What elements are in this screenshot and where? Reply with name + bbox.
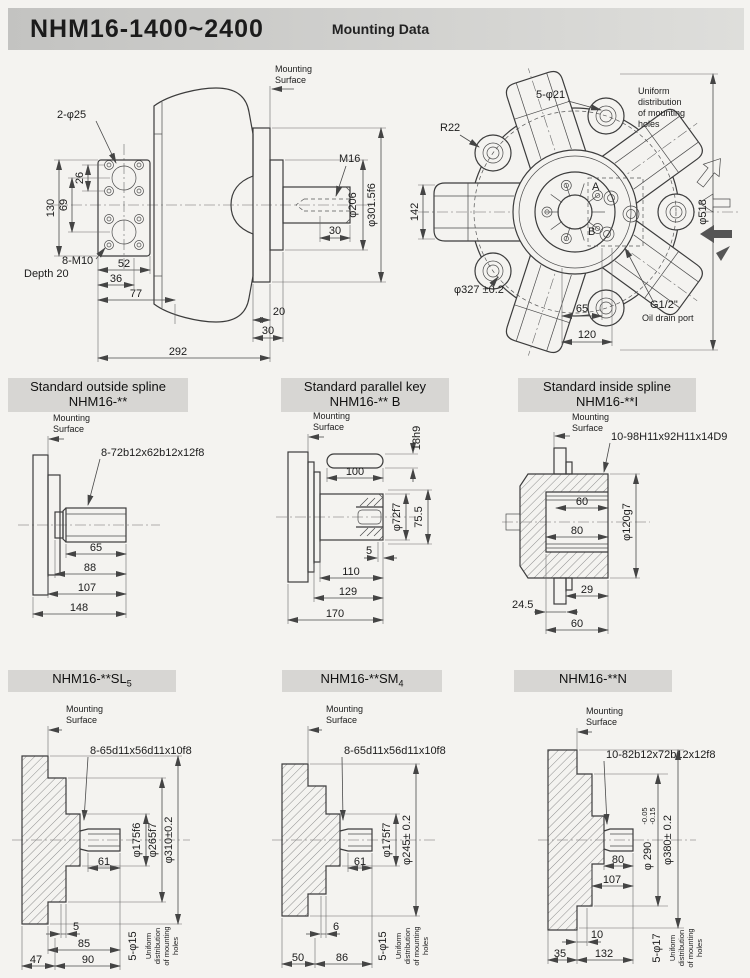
mounting-surface-label: Surface (586, 717, 617, 727)
dim-170: 170 (326, 608, 344, 620)
page-header: NHM16-1400~2400 Mounting Data (8, 8, 744, 50)
drain-thread-label: G1/2" (650, 299, 678, 311)
dim-ports: 2-φ25 (57, 109, 86, 121)
catalog-page: NHM16-1400~2400 Mounting Data (0, 0, 750, 978)
dim-dia120: φ120g7 (621, 503, 633, 541)
dim-dia301: φ301.5f6 (366, 183, 378, 227)
dim-65: 65 (576, 303, 588, 315)
n-flange-drawing: Mounting Surface 10-82b12x72b12x12f8 80 … (500, 698, 748, 978)
port-a-label: A (592, 181, 600, 193)
dim-47: 47 (30, 954, 42, 966)
sl5-flange-drawing: Mounting Surface 8-65d11x56d11x10f8 61 φ… (8, 698, 248, 978)
dim-148: 148 (70, 602, 88, 614)
dim-r22: R22 (440, 122, 460, 134)
dim-5: 5 (366, 545, 372, 557)
dim-dia175: φ175f6 (131, 823, 143, 858)
dim-key-height: 18h9 (411, 426, 423, 450)
mounting-surface-label: Mounting (572, 412, 609, 422)
dim-holes: 5-φ15 (127, 931, 139, 960)
page-subtitle: Mounting Data (332, 21, 429, 37)
panel-title-parallel-key: Standard parallel keyNHM16-** B (281, 378, 449, 412)
dim-52: 52 (118, 258, 130, 270)
svg-text:of mounting: of mounting (412, 926, 421, 965)
panel-title-n: NHM16-**N (514, 670, 672, 692)
svg-text:holes: holes (638, 119, 660, 129)
dim-dia310: φ310±0.2 (163, 817, 175, 864)
dim-65: 65 (90, 542, 102, 554)
spline-spec: 10-98H11x92H11x14D9 (611, 431, 727, 443)
parallel-key-drawing: 100 18h9 Mounting Surface φ72f7 75.5 (268, 410, 493, 635)
mounting-surface-label: Surface (66, 715, 97, 725)
dim-dia206: φ206 (347, 192, 359, 218)
spline-spec: 8-65d11x56d11x10f8 (90, 745, 192, 757)
spline-spec: 10-82b12x72b12x12f8 (606, 749, 715, 761)
mounting-surface-label: Mounting (53, 413, 90, 423)
dim-107: 107 (603, 874, 621, 886)
dim-20: 20 (273, 306, 285, 318)
front-view-drawing: A B 142 φ518 5-φ21 Uniform distribution … (410, 58, 750, 373)
dim-thread: M16 (339, 153, 360, 165)
dim-130: 130 (45, 199, 57, 217)
dim-29: 29 (581, 584, 593, 596)
mounting-surface-label: Mounting (275, 64, 312, 74)
svg-text:Uniform: Uniform (394, 933, 403, 959)
dim-292: 292 (169, 346, 187, 358)
dim-36: 36 (110, 273, 122, 285)
svg-text:holes: holes (695, 939, 704, 957)
dim-60: 60 (576, 496, 588, 508)
dim-dia245: φ245± 0.2 (401, 815, 413, 865)
dim-holes: 5-φ17 (651, 933, 663, 962)
outside-spline-drawing: Mounting Surface 8-72b12x62b12x12f8 65 8… (8, 410, 248, 635)
panel-title-sl5: NHM16-**SL5 (8, 670, 176, 692)
mounting-surface-label: Surface (313, 422, 344, 432)
dim-30s: 30 (329, 225, 341, 237)
mounting-surface-label: Mounting (326, 704, 363, 714)
dim-88: 88 (84, 562, 96, 574)
drain-port-label: Oil drain port (642, 313, 694, 323)
sm4-flange-drawing: Mounting Surface 8-65d11x56d11x10f8 61 φ… (268, 698, 493, 978)
svg-text:holes: holes (171, 937, 180, 955)
svg-text:Uniform: Uniform (144, 933, 153, 959)
dim-50: 50 (292, 952, 304, 964)
spline-spec: 8-65d11x56d11x10f8 (344, 745, 446, 757)
mounting-surface-label: Mounting (586, 706, 623, 716)
uniform-note: Uniform distribution of mounting holes (668, 928, 704, 967)
dim-dia265: φ265f7 (147, 823, 159, 858)
mounting-surface-label: Surface (572, 423, 603, 433)
dim-755: 75.5 (413, 506, 425, 527)
dim-60b: 60 (571, 618, 583, 630)
dim-129: 129 (339, 586, 357, 598)
inside-spline-drawing: Mounting Surface 10-98H11x92H11x14D9 60 … (498, 410, 746, 635)
dim-132: 132 (595, 948, 613, 960)
dim-245: 24.5 (512, 599, 533, 611)
dim-77: 77 (130, 288, 142, 300)
dim-69: 69 (58, 199, 70, 211)
svg-text:Uniform: Uniform (668, 935, 677, 961)
dim-dia175: φ175f7 (381, 823, 393, 858)
svg-text:of mounting: of mounting (638, 108, 685, 118)
dim-120: 120 (578, 329, 596, 341)
dim-dia327: φ327 ±0.2 (454, 284, 504, 296)
mounting-surface-label: Surface (53, 424, 84, 434)
svg-text:distribution: distribution (638, 97, 682, 107)
panel-title-sm4: NHM16-**SM4 (282, 670, 442, 692)
dim-30: 30 (262, 325, 274, 337)
svg-text:distribution: distribution (403, 928, 412, 964)
dim-bolts-depth: Depth 20 (24, 268, 69, 280)
dim-dia290: φ 290 (642, 842, 654, 871)
dim-holes: 5-φ21 (536, 89, 565, 101)
svg-text:of mounting: of mounting (162, 926, 171, 965)
dim-5: 5 (73, 921, 79, 933)
svg-text:holes: holes (421, 937, 430, 955)
dim-142: 142 (409, 203, 421, 221)
mounting-surface-label: Mounting (66, 704, 103, 714)
dim-90: 90 (82, 954, 94, 966)
dim-key-length: 100 (346, 466, 364, 478)
svg-text:distribution: distribution (677, 930, 686, 966)
dim-holes: 5-φ15 (377, 931, 389, 960)
dim-6: 6 (333, 921, 339, 933)
page-title: NHM16-1400~2400 (30, 15, 264, 44)
side-view-drawing: Mounting Surface 2-φ25 130 26 69 8-M10 D… (2, 58, 412, 373)
dim-bolts: 8-M10 (62, 255, 93, 267)
svg-text:distribution: distribution (153, 928, 162, 964)
dim-80: 80 (612, 854, 624, 866)
dim-10: 10 (591, 929, 603, 941)
svg-text:Uniform: Uniform (638, 86, 670, 96)
dim-110: 110 (342, 566, 360, 578)
mounting-surface-label: Surface (326, 715, 357, 725)
dim-dia72: φ72f7 (391, 503, 403, 532)
dim-35: 35 (554, 948, 566, 960)
dim-85: 85 (78, 938, 90, 950)
mounting-surface-label: Mounting (313, 411, 350, 421)
panel-title-outside-spline: Standard outside splineNHM16-** (8, 378, 188, 412)
uniform-note: Uniform distribution of mounting holes (394, 926, 430, 965)
uniform-note: Uniform distribution of mounting holes (144, 926, 180, 965)
panel-title-inside-spline: Standard inside splineNHM16-**I (518, 378, 696, 412)
dim-86: 86 (336, 952, 348, 964)
dim-80: 80 (571, 525, 583, 537)
spline-spec: 8-72b12x62b12x12f8 (101, 447, 204, 459)
svg-text:of mounting: of mounting (686, 928, 695, 967)
port-b-label: B (588, 226, 595, 238)
dim-dia290-tol-lower: -0.15 (648, 807, 657, 824)
dim-dia380: φ380± 0.2 (662, 815, 674, 865)
dim-107: 107 (78, 582, 96, 594)
mounting-surface-label: Surface (275, 75, 306, 85)
